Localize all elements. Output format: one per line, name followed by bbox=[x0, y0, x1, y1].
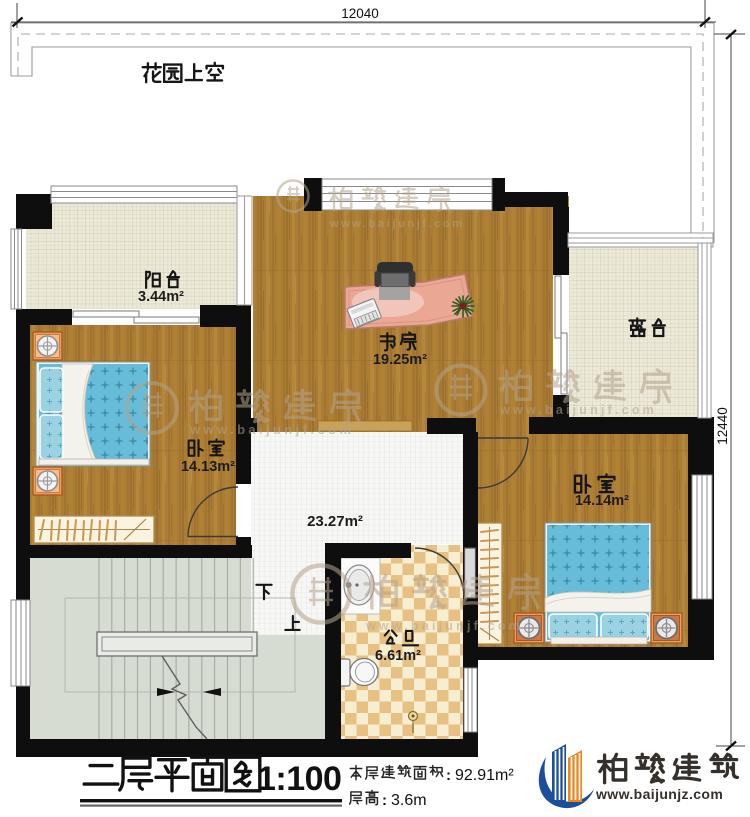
svg-text:23.27m²: 23.27m² bbox=[307, 513, 363, 530]
svg-text::: : bbox=[446, 767, 451, 784]
svg-text:www.baijunjz.com: www.baijunjz.com bbox=[595, 786, 723, 802]
svg-text:1:100: 1:100 bbox=[257, 760, 341, 798]
svg-text:6.61m²: 6.61m² bbox=[375, 648, 421, 664]
svg-text:19.25m²: 19.25m² bbox=[373, 352, 427, 368]
svg-text:www.baijunjf.com: www.baijunjf.com bbox=[365, 619, 523, 633]
svg-text:www.baijunjf.com: www.baijunjf.com bbox=[499, 403, 657, 417]
svg-text:12040: 12040 bbox=[341, 6, 379, 21]
svg-text:14.13m²: 14.13m² bbox=[181, 459, 235, 475]
svg-text:92.91m²: 92.91m² bbox=[455, 767, 514, 784]
svg-text:www.baijunjf.com: www.baijunjf.com bbox=[189, 422, 354, 437]
svg-text::: : bbox=[382, 792, 387, 809]
svg-text:14.14m²: 14.14m² bbox=[575, 493, 629, 509]
svg-text:3.6m: 3.6m bbox=[391, 792, 427, 809]
svg-text:www.baijunjf.com: www.baijunjf.com bbox=[329, 218, 465, 230]
svg-text:3.44m²: 3.44m² bbox=[138, 289, 184, 305]
svg-text:12440: 12440 bbox=[715, 407, 730, 445]
